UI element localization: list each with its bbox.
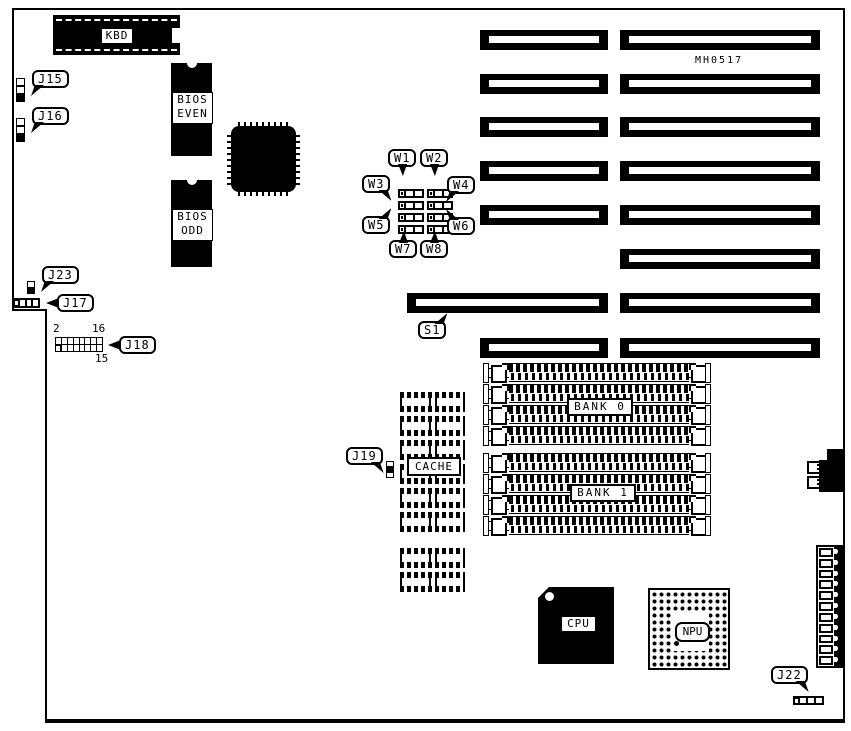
callout-tail: [31, 85, 44, 96]
expansion-slot: [480, 117, 608, 137]
jumper-block: [398, 189, 424, 198]
jumper-block: [398, 213, 424, 222]
kbd-label: KBD: [101, 28, 133, 44]
kbd-dashed-line: [56, 49, 177, 51]
board-edge-step: [12, 309, 47, 311]
callout-tail: [398, 164, 407, 176]
callout-tail: [108, 340, 121, 350]
callout-tail: [41, 281, 54, 292]
header-j18: [55, 337, 103, 352]
expansion-slot: [620, 249, 820, 269]
bios-even-line2: EVEN: [173, 107, 212, 121]
callout-j18: J18: [119, 336, 156, 354]
callout-tail: [796, 681, 809, 692]
cache-chip: [400, 488, 465, 508]
qfp-pins-bottom: [238, 191, 290, 196]
board-edge-left-lower: [45, 309, 47, 723]
simm-socket: [483, 363, 711, 383]
expansion-slot: [620, 205, 820, 225]
callout-w4: W4: [447, 176, 475, 194]
bank0-label: BANK 0: [567, 398, 633, 416]
bios-even-line1: BIOS: [173, 93, 212, 107]
expansion-slot: [620, 161, 820, 181]
connector-j17: [13, 298, 40, 308]
cpu-label: CPU: [562, 617, 595, 631]
callout-tail: [378, 190, 391, 201]
callout-tail: [430, 164, 439, 176]
callout-j16-text: J16: [38, 109, 63, 123]
callout-j17: J17: [57, 294, 94, 312]
board-edge-left-upper: [12, 8, 14, 311]
expansion-slot: [480, 30, 608, 50]
expansion-slot-s1: [407, 293, 608, 313]
callout-tail: [378, 208, 391, 219]
cache-chip: [400, 416, 465, 436]
cache-chip-block: [400, 548, 465, 592]
jumper-block: [398, 201, 424, 210]
expansion-slot: [620, 74, 820, 94]
simm-socket: [483, 426, 711, 446]
callout-j19: J19: [346, 447, 383, 465]
callout-tail: [446, 209, 459, 220]
motherboard-diagram: KBD J15 J16 BIOS EVEN BIOS ODD W1: [0, 0, 851, 731]
callout-tail: [434, 313, 447, 324]
expansion-slot: [620, 30, 820, 50]
callout-j23: J23: [42, 266, 79, 284]
callout-tail: [371, 462, 384, 473]
callout-w1: W1: [388, 149, 416, 167]
bios-odd-label: BIOS ODD: [172, 209, 213, 241]
bios-odd-line1: BIOS: [173, 210, 212, 224]
npu-label: NPU: [675, 622, 710, 642]
cache-chip: [400, 572, 465, 592]
jumper-j16: [16, 118, 25, 142]
cache-chip: [400, 548, 465, 568]
simm-socket: [483, 453, 711, 473]
qfp-pins-left: [227, 133, 232, 185]
jumper-block: [398, 225, 424, 234]
chip-notch: [187, 180, 197, 185]
jumper-j19: [386, 461, 394, 478]
bank1-label: BANK 1: [570, 484, 636, 502]
expansion-slot: [480, 161, 608, 181]
qfp-pins-top: [238, 122, 290, 127]
callout-tail: [46, 298, 59, 308]
kbd-connector: KBD: [53, 15, 180, 55]
board-part-number: MH0517: [695, 55, 743, 66]
cpu-pin1-dot: [545, 592, 554, 601]
callout-s1: S1: [418, 321, 446, 339]
expansion-slot: [620, 117, 820, 137]
cache-chip: [400, 392, 465, 412]
board-edge-bottom: [45, 719, 845, 723]
callout-w8: W8: [420, 240, 448, 258]
edge-connector-strip: [816, 545, 844, 668]
j18-pin2-number: 2: [53, 322, 60, 335]
expansion-slot: [620, 338, 820, 358]
npu-pin1-dot: [674, 641, 679, 646]
callout-tail: [31, 122, 44, 133]
board-edge-top: [12, 8, 845, 10]
power-connector-tab: [807, 461, 819, 474]
kbd-dashed-line: [56, 19, 177, 21]
power-connector: [819, 460, 845, 492]
expansion-slot: [480, 338, 608, 358]
callout-w6: W6: [447, 217, 475, 235]
qfp-chip: [231, 126, 296, 192]
jumper-j15: [16, 78, 25, 102]
qfp-pins-right: [295, 133, 300, 185]
callout-j16: J16: [32, 107, 69, 125]
kbd-notch: [172, 28, 180, 43]
callout-w3: W3: [362, 175, 390, 193]
chip-notch: [187, 63, 197, 68]
callout-w7: W7: [389, 240, 417, 258]
callout-w2: W2: [420, 149, 448, 167]
cpu-chip: CPU: [538, 587, 614, 664]
connector-j22: [793, 696, 824, 705]
callout-j15-text: J15: [38, 72, 63, 86]
jumper-j23: [27, 281, 35, 294]
cache-label: CACHE: [407, 457, 461, 476]
expansion-slot: [480, 205, 608, 225]
callout-j22: J22: [771, 666, 808, 684]
power-connector-tab: [807, 476, 819, 489]
cache-chip: [400, 512, 465, 532]
expansion-slot: [620, 293, 820, 313]
expansion-slot: [480, 74, 608, 94]
callout-w5: W5: [362, 216, 390, 234]
jumper-block: [427, 201, 453, 210]
j18-pin15-number: 15: [95, 352, 108, 365]
simm-socket: [483, 516, 711, 536]
bios-even-label: BIOS EVEN: [172, 92, 213, 124]
power-connector: [827, 449, 845, 460]
j18-pin16-number: 16: [92, 322, 105, 335]
npu-socket: NPU: [648, 588, 730, 670]
bios-odd-line2: ODD: [173, 224, 212, 238]
callout-j15: J15: [32, 70, 69, 88]
